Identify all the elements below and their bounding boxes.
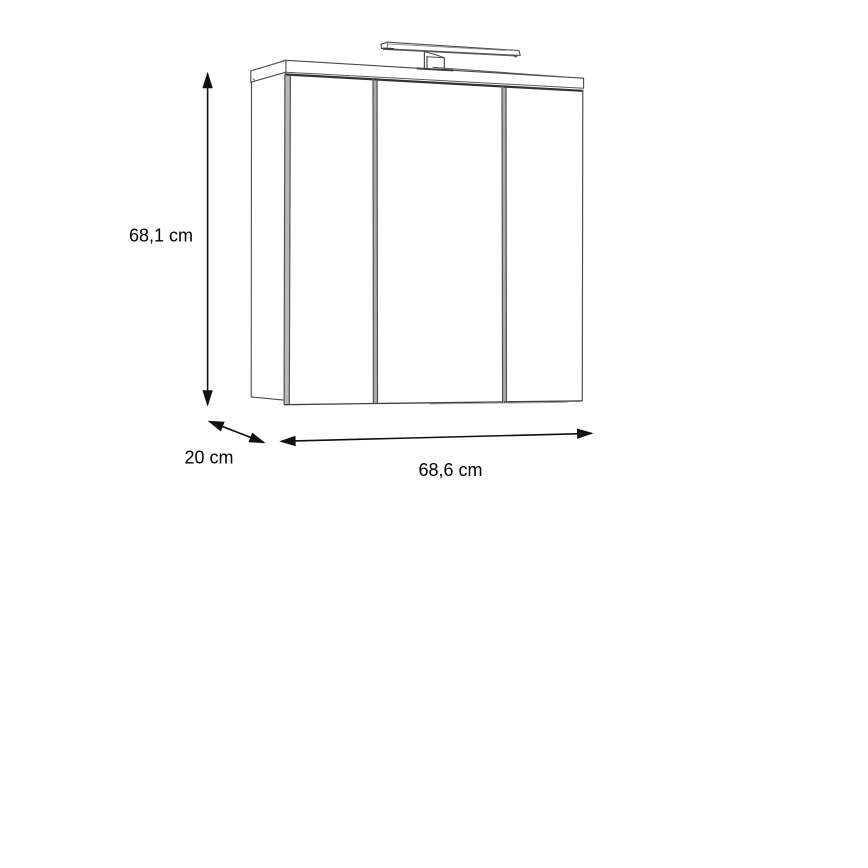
svg-text:68,1 cm: 68,1 cm — [129, 226, 193, 246]
svg-text:20 cm: 20 cm — [185, 448, 234, 468]
svg-text:68,6 cm: 68,6 cm — [419, 460, 483, 480]
